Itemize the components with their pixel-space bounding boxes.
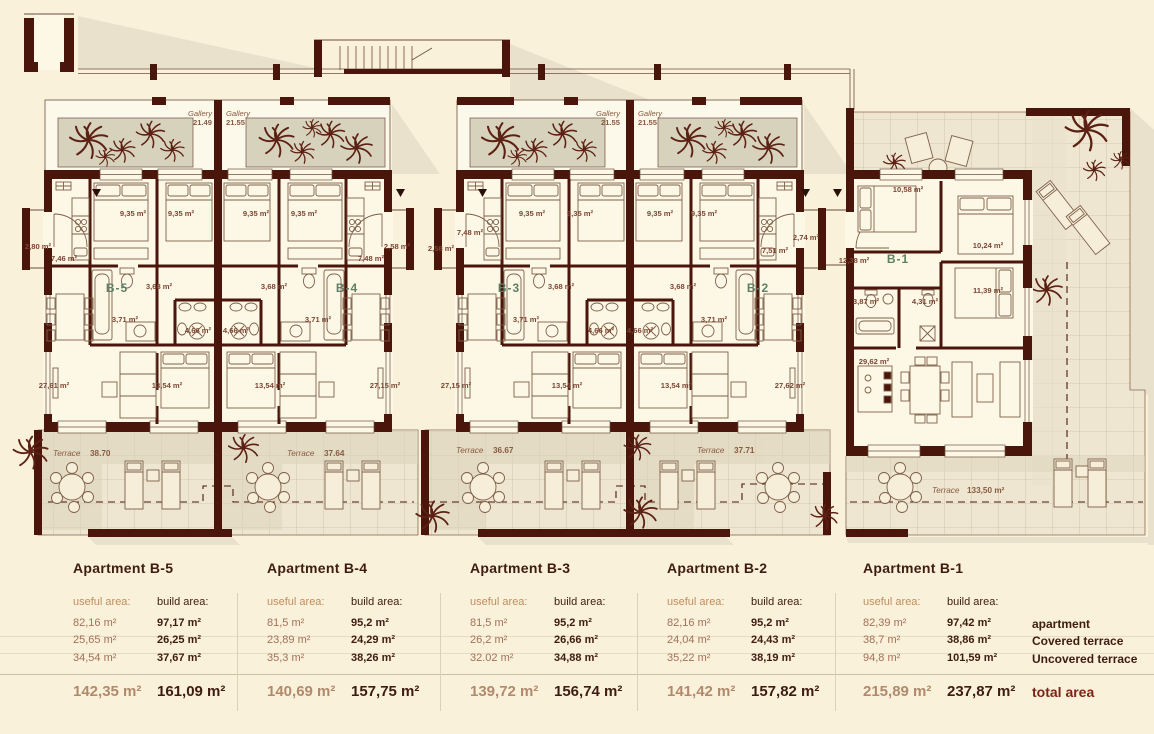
room-label: 2,80 m² (25, 242, 52, 251)
apartment-b1 (818, 169, 1033, 457)
build-value: 95,2 m² (351, 617, 389, 629)
room-label: 9,35 m² (567, 209, 594, 218)
useful-total: 140,69 m² (267, 683, 335, 700)
build-value: 34,88 m² (554, 652, 598, 664)
row-label-covered-terrace: Covered terrace (1032, 634, 1123, 648)
useful-area-header: useful area: (667, 596, 724, 608)
room-label: 13,54 m² (552, 381, 583, 390)
gallery-label: Gallery (226, 109, 251, 118)
useful-total: 215,89 m² (863, 683, 931, 700)
useful-value: 34,54 m² (73, 652, 116, 664)
build-total: 161,09 m² (157, 683, 225, 700)
room-label: 27,62 m² (775, 381, 806, 390)
apartment-summary-b5: Apartment B-5 useful area: build area: 8… (68, 545, 253, 734)
useful-value: 25,65 m² (73, 634, 116, 646)
build-area-header: build area: (351, 596, 402, 608)
build-total: 157,75 m² (351, 683, 419, 700)
build-value: 101,59 m² (947, 652, 997, 664)
room-label: 9,35 m² (243, 209, 270, 218)
build-total: 156,74 m² (554, 683, 622, 700)
room-label: 9,35 m² (519, 209, 546, 218)
room-label: 3,71 m² (305, 315, 332, 324)
room-label: 7,48 m² (457, 228, 484, 237)
terrace-area: 133,50 m² (967, 486, 1005, 495)
build-area-header: build area: (554, 596, 605, 608)
gallery-label: Gallery (638, 109, 663, 118)
room-label: 4,66 m² (588, 326, 615, 335)
useful-total: 142,35 m² (73, 683, 141, 700)
room-label: 27,15 m² (370, 381, 401, 390)
room-label: 13,54 m² (152, 381, 183, 390)
apartment-title: Apartment B-5 (73, 560, 173, 576)
gallery-label: Gallery (188, 109, 213, 118)
gallery-area: 21.49 (193, 118, 212, 127)
terrace-label: Terrace (697, 446, 725, 455)
room-label: 9,35 m² (647, 209, 674, 218)
room-label: 29,62 m² (859, 357, 890, 366)
room-label: 3,68 m² (670, 282, 697, 291)
build-total: 157,82 m² (751, 683, 819, 700)
room-label: 7,46 m² (51, 254, 78, 263)
useful-area-header: useful area: (267, 596, 324, 608)
unit-label-b4: B-4 (336, 281, 358, 295)
gallery-area: 21.55 (601, 118, 621, 127)
terrace-label: Terrace (53, 449, 81, 458)
apartment-summary-b1: Apartment B-1 useful area: build area: 8… (858, 545, 1043, 734)
room-label: 11,39 m² (973, 286, 1003, 295)
terrace-area: 37.71 (734, 446, 755, 455)
build-value: 95,2 m² (751, 617, 789, 629)
terrace-label: Terrace (932, 486, 960, 495)
room-label: 3,71 m² (701, 315, 728, 324)
entrance-structure (24, 14, 74, 72)
useful-value: 82,16 m² (73, 617, 116, 629)
room-label: 27,15 m² (441, 381, 472, 390)
row-label-total-area: total area (1032, 684, 1094, 700)
row-label-apartment: apartment (1032, 617, 1090, 631)
room-label: 3,71 m² (513, 315, 540, 324)
gallery-wall-segment (457, 97, 514, 105)
useful-value: 38,7 m² (863, 634, 900, 646)
build-value: 37,67 m² (157, 652, 201, 664)
apartment-title: Apartment B-3 (470, 560, 570, 576)
useful-total: 141,42 m² (667, 683, 735, 700)
room-label: 2,74 m² (793, 233, 820, 242)
useful-area-header: useful area: (73, 596, 130, 608)
room-label: 10,58 m² (893, 185, 924, 194)
apartment-title: Apartment B-2 (667, 560, 767, 576)
unit-label-b3: B-3 (498, 281, 520, 295)
build-value: 24,43 m² (751, 634, 795, 646)
build-value: 95,2 m² (554, 617, 592, 629)
room-label: 9,35 m² (691, 209, 718, 218)
build-total: 237,87 m² (947, 683, 1015, 700)
build-area-header: build area: (947, 596, 998, 608)
room-label: 3,68 m² (261, 282, 288, 291)
gallery-label: Gallery (596, 109, 621, 118)
room-label: 13,54 m² (255, 381, 286, 390)
table-row-labels: apartment Covered terrace Uncovered terr… (1032, 545, 1154, 734)
useful-value: 81,5 m² (267, 617, 304, 629)
terrace-area: 38.70 (90, 449, 111, 458)
build-value: 38,26 m² (351, 652, 395, 664)
useful-total: 139,72 m² (470, 683, 538, 700)
build-value: 26,25 m² (157, 634, 201, 646)
useful-area-header: useful area: (470, 596, 527, 608)
build-value: 38,86 m² (947, 634, 991, 646)
build-area-header: build area: (751, 596, 802, 608)
useful-value: 35,22 m² (667, 652, 710, 664)
room-label: 13,54 m² (661, 381, 692, 390)
room-label: 9,35 m² (168, 209, 195, 218)
room-label: 3,68 m² (548, 282, 575, 291)
build-area-header: build area: (157, 596, 208, 608)
useful-value: 23,89 m² (267, 634, 310, 646)
useful-value: 82,16 m² (667, 617, 710, 629)
useful-value: 35,3 m² (267, 652, 304, 664)
room-label: 3,71 m² (112, 315, 139, 324)
apartment-title: Apartment B-1 (863, 560, 963, 576)
build-value: 26,66 m² (554, 634, 598, 646)
terrace-area: 36.67 (493, 446, 514, 455)
useful-area-header: useful area: (863, 596, 920, 608)
room-label: 3,87 m² (853, 297, 880, 306)
room-label: 4,66 m² (627, 326, 654, 335)
gallery-area: 21.55 (226, 118, 246, 127)
useful-value: 94,8 m² (863, 652, 900, 664)
useful-value: 24,04 m² (667, 634, 710, 646)
apartment-summary-b3: Apartment B-3 useful area: build area: 8… (465, 545, 650, 734)
unit-label-b1: B-1 (887, 252, 909, 266)
room-label: 4,66 m² (185, 326, 212, 335)
apartment-title: Apartment B-4 (267, 560, 367, 576)
room-label: 4,31 m² (912, 297, 939, 306)
room-label: 9,35 m² (291, 209, 318, 218)
unit-label-b5: B-5 (106, 281, 128, 295)
room-label: 12,38 m² (839, 256, 870, 265)
build-value: 24,29 m² (351, 634, 395, 646)
room-label: 27,61 m² (39, 381, 70, 390)
unit-label-b2: B-2 (747, 281, 769, 295)
build-value: 38,19 m² (751, 652, 795, 664)
room-label: 9,35 m² (120, 209, 147, 218)
room-label: 4,66 m² (223, 326, 250, 335)
room-label: 2,58 m² (428, 244, 455, 253)
terrace-label: Terrace (456, 446, 484, 455)
useful-value: 82,39 m² (863, 617, 906, 629)
terrace-area: 37.64 (324, 449, 345, 458)
useful-value: 26,2 m² (470, 634, 507, 646)
row-label-uncovered-terrace: Uncovered terrace (1032, 652, 1137, 666)
useful-value: 32.02 m² (470, 652, 513, 664)
room-label: 3,68 m² (146, 282, 173, 291)
build-value: 97,42 m² (947, 617, 991, 629)
room-label: 2,58 m² (384, 242, 411, 251)
apartment-summary-b2: Apartment B-2 useful area: build area: 8… (662, 545, 847, 734)
useful-value: 81,5 m² (470, 617, 507, 629)
room-label: 7,48 m² (358, 254, 385, 263)
room-label: 10,24 m² (973, 241, 1004, 250)
room-label: 7,51 m² (762, 246, 789, 255)
apartment-summary-b4: Apartment B-4 useful area: build area: 8… (262, 545, 447, 734)
floor-plan: 2,80 m² 7,46 m² 9,35 m² 9,35 m² 9,35 m² … (0, 0, 1154, 545)
gallery-area: 21.55 (638, 118, 658, 127)
build-value: 97,17 m² (157, 617, 201, 629)
terrace-label: Terrace (287, 449, 315, 458)
